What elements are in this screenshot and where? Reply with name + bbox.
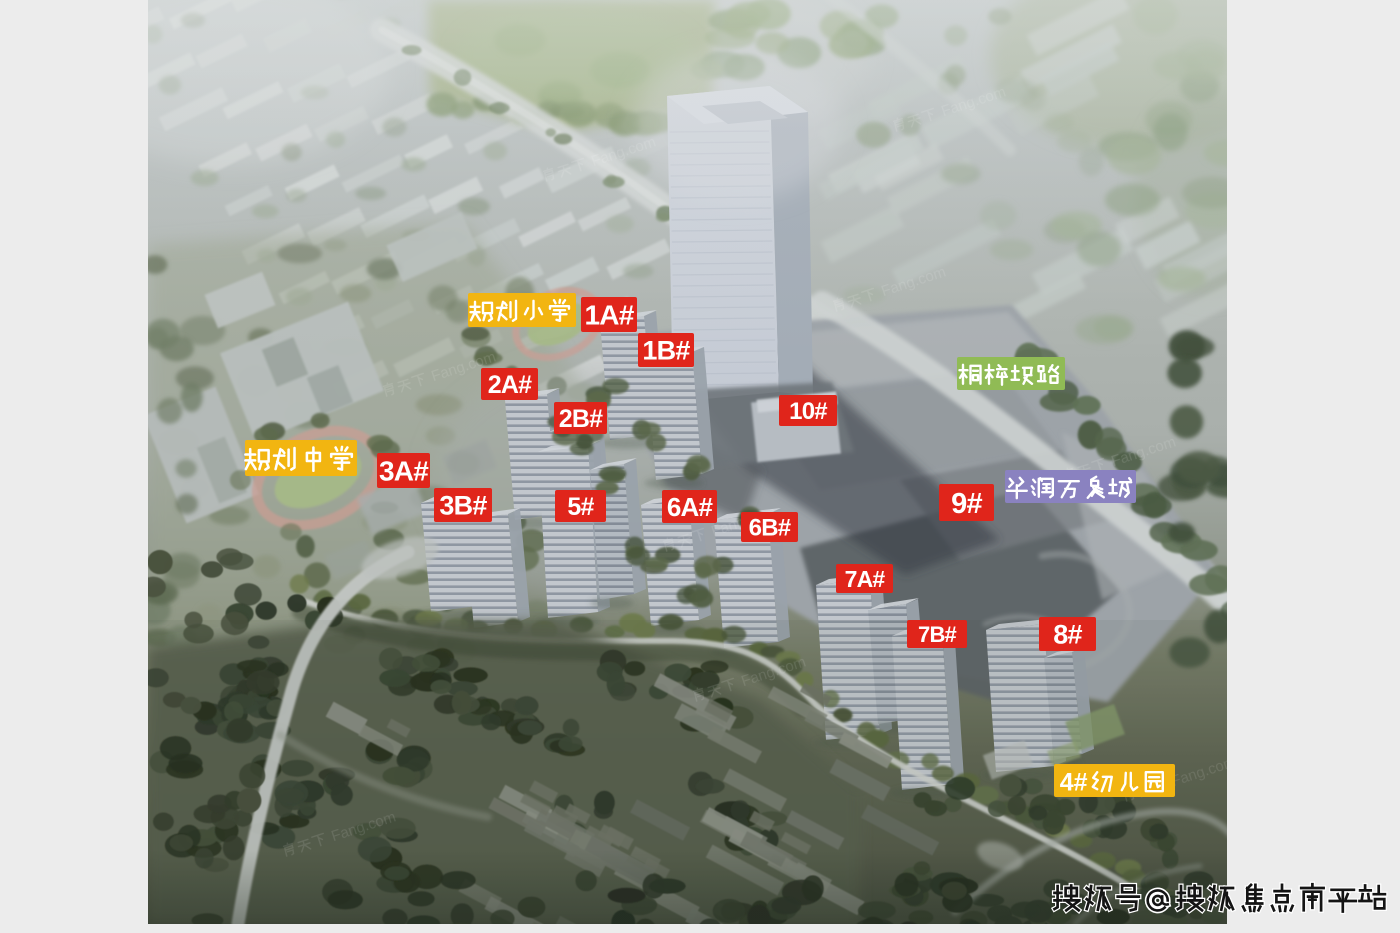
svg-text:4#: 4# [1060,769,1088,797]
svg-text:5#: 5# [567,493,594,521]
svg-text:3A#: 3A# [379,456,429,487]
svg-text:3B#: 3B# [439,491,487,521]
svg-text:2A#: 2A# [488,371,532,399]
svg-text:8#: 8# [1053,620,1082,650]
svg-text:7A#: 7A# [845,566,886,592]
svg-text:6B#: 6B# [749,515,791,542]
svg-text:10#: 10# [789,398,827,425]
svg-text:9#: 9# [951,488,982,520]
svg-text:7B#: 7B# [918,622,957,647]
svg-text:1A#: 1A# [585,300,635,331]
svg-text:2B#: 2B# [559,405,603,433]
svg-text:1B#: 1B# [642,336,690,366]
svg-text:6A#: 6A# [667,492,714,522]
